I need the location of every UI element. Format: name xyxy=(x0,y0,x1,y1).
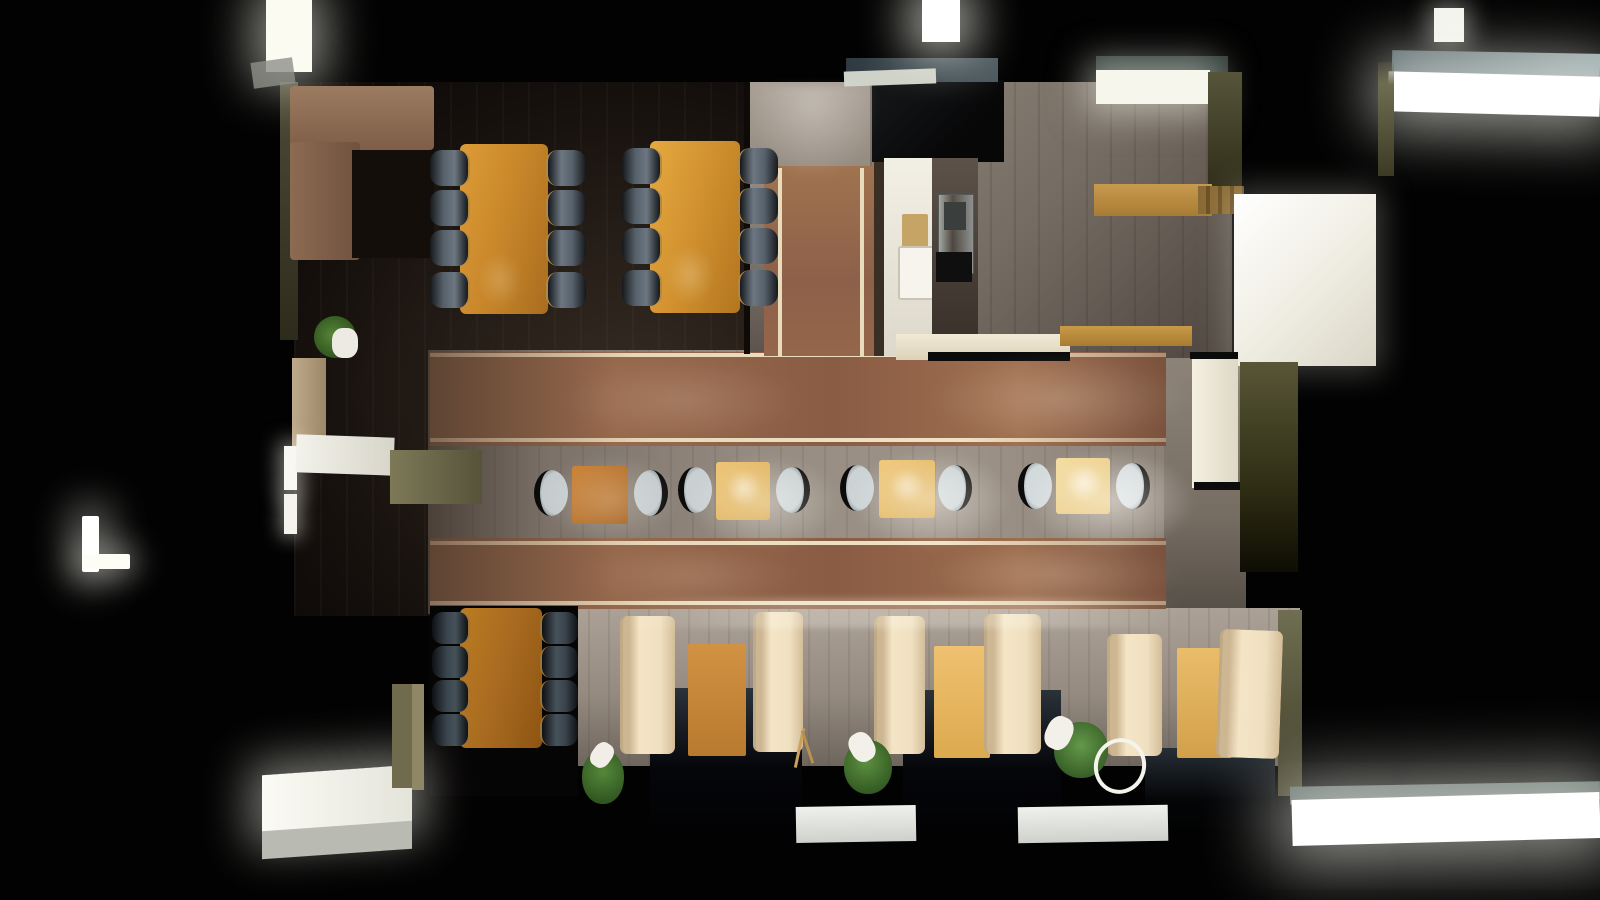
kitchen-backsplash-sill xyxy=(844,68,936,86)
white-pillar-cap-bottom xyxy=(1194,482,1240,490)
booth-bench-3b xyxy=(1216,629,1283,759)
chair-t2-left-4 xyxy=(622,270,662,306)
booth-table-1 xyxy=(688,644,746,756)
chair-t1-left-2 xyxy=(430,190,470,226)
wall-tan-bottom-left xyxy=(412,684,424,790)
chair-t1-left-1 xyxy=(430,150,470,186)
booth-bench-2a xyxy=(874,616,925,754)
light-pool-booth-top xyxy=(620,598,1180,628)
window-top-right-light-band xyxy=(1388,71,1600,117)
cutting-board xyxy=(902,214,928,248)
chair-t2-right-2 xyxy=(738,188,778,224)
booth-bench-1b xyxy=(753,612,803,752)
window-top-middle xyxy=(922,0,960,42)
booth-bench-1a xyxy=(620,616,675,754)
chair-t3-right-4 xyxy=(540,714,578,746)
exterior-light-L-horizontal xyxy=(82,554,130,569)
render-canvas xyxy=(0,0,1600,900)
bottom-dark-band xyxy=(0,836,1600,900)
plant-pot-topleft xyxy=(332,328,358,358)
wood-shelf xyxy=(1094,184,1212,216)
light-pool-corridor xyxy=(752,86,874,176)
entry-floor-olive xyxy=(390,450,482,504)
chair-t2-left-3 xyxy=(622,228,662,264)
microwave xyxy=(936,252,972,282)
kitchen-sink xyxy=(898,246,934,300)
wall-olive-topright-strip xyxy=(1378,62,1394,176)
window-bottom-right-light-band xyxy=(1291,792,1600,846)
kitchen-black-island xyxy=(872,80,1004,162)
window-sill-bottom-1 xyxy=(796,805,917,843)
left-window-strip-2 xyxy=(284,494,297,534)
chair-t1-right-2 xyxy=(546,190,586,226)
bloom-tablecloth-1 xyxy=(478,252,522,308)
fridge-inner-panel xyxy=(944,202,966,230)
sofa-corner-top xyxy=(290,86,434,150)
chair-t1-right-1 xyxy=(546,150,586,186)
chair-t3-right-2 xyxy=(540,646,578,678)
entry-floor-white xyxy=(295,434,394,475)
booth-bench-2b xyxy=(984,614,1041,754)
chair-t3-right-3 xyxy=(540,680,578,712)
bloom-cafe-table-3 xyxy=(889,468,925,504)
window-sill-bottom-2 xyxy=(1018,805,1169,844)
window-top-right-square xyxy=(1434,8,1464,42)
booth-table-2 xyxy=(934,646,990,758)
light-pool-walkway-3 xyxy=(850,450,1010,550)
carpet-mat-trim-left xyxy=(778,168,782,356)
chair-t3-right-1 xyxy=(540,612,578,644)
chair-t3-left-4 xyxy=(432,714,470,746)
olive-wall-east xyxy=(1240,362,1298,572)
chair-t3-left-1 xyxy=(432,612,470,644)
light-pool-carpet-upper-1 xyxy=(560,356,800,444)
chair-t3-left-2 xyxy=(432,646,470,678)
white-pillar-cap-top xyxy=(1190,352,1238,359)
bloom-cafe-table-2 xyxy=(726,470,762,506)
long-table-cloth-3 xyxy=(460,608,542,748)
chair-t2-left-2 xyxy=(622,188,662,224)
light-pool-carpet-upper-2 xyxy=(930,354,1190,444)
chair-t1-right-3 xyxy=(546,230,586,266)
white-cold-room xyxy=(1234,194,1376,366)
sofa-corner-left xyxy=(290,142,360,260)
sofa-inner-shadow xyxy=(352,150,434,258)
chair-t1-left-3 xyxy=(430,230,470,266)
light-pool-walkway-2 xyxy=(690,455,840,550)
bloom-tablecloth-2 xyxy=(666,246,714,304)
olive-wall-northeast xyxy=(1208,72,1242,204)
chair-t3-left-3 xyxy=(432,680,470,712)
chair-t2-left-1 xyxy=(622,148,662,184)
chair-t2-right-4 xyxy=(738,270,778,306)
chair-t1-left-4 xyxy=(430,272,470,308)
white-pillar xyxy=(1192,356,1238,488)
chair-t1-right-4 xyxy=(546,272,586,308)
carpet-mat-trim-right xyxy=(860,168,864,356)
chair-t2-right-3 xyxy=(738,228,778,264)
light-pool-walkway-1 xyxy=(540,455,680,545)
kitchen-lit-floor-patch xyxy=(1096,70,1210,104)
bloom-cafe-table-4 xyxy=(1064,464,1104,502)
light-pool-walkway-4 xyxy=(1025,448,1195,553)
kitchen-wood-bar xyxy=(1060,326,1192,346)
